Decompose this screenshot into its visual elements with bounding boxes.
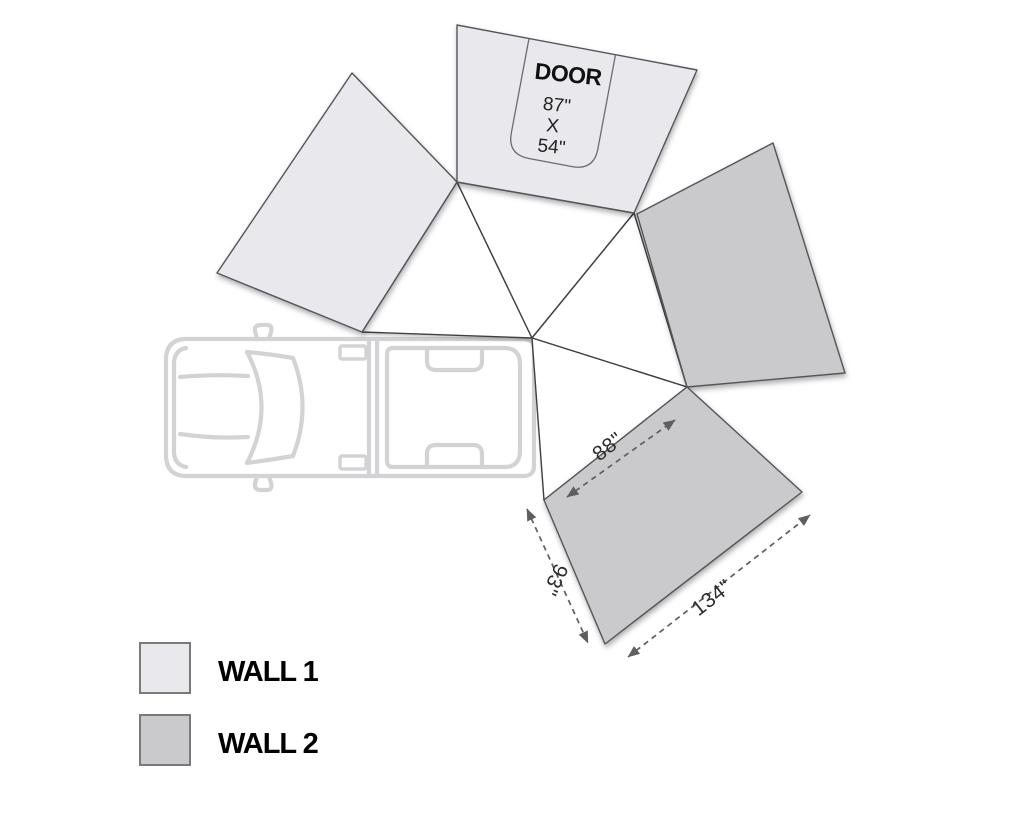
truck-bed-liner (387, 348, 520, 467)
wall1-door-panel (457, 25, 697, 213)
truck-hood-line-bottom (180, 434, 248, 438)
door-width-label: 87" (542, 94, 572, 118)
door-x-label: X (545, 115, 560, 137)
dimension-label-134: 134" (687, 575, 736, 621)
awning-wall-layout-page: DOOR 87" X 54" 88" 93" 134" WALL 1 WALL … (0, 0, 1024, 819)
awning-layout-diagram: DOOR 87" X 54" 88" 93" 134" WALL 1 WALL … (0, 0, 1024, 819)
truck-a-pillar-top (247, 352, 293, 358)
truck-a-pillar-bottom (247, 456, 293, 463)
truck-windshield-front-arc (247, 352, 262, 463)
truck-wheel-arch-bottom (427, 445, 482, 466)
truck-front-bumper (174, 348, 186, 467)
truck-mirror-bottom (255, 476, 272, 490)
pickup-truck-top-view-icon (166, 325, 534, 490)
truck-hood-line-top (180, 375, 248, 377)
legend-swatch-wall2 (140, 715, 190, 765)
truck-roof-vent-bottom (340, 456, 366, 469)
legend-label-wall1: WALL 1 (218, 656, 319, 688)
legend-swatch-wall1 (140, 643, 190, 693)
truck-windshield-rear-arc (293, 358, 303, 456)
door-height-label: 54" (536, 135, 566, 159)
truck-wheel-arch-top (427, 349, 482, 370)
legend-label-wall2: WALL 2 (218, 728, 318, 760)
legend: WALL 1 WALL 2 (140, 643, 319, 765)
truck-roof-vent-top (340, 346, 366, 359)
dimension-label-93: 93" (538, 560, 573, 599)
